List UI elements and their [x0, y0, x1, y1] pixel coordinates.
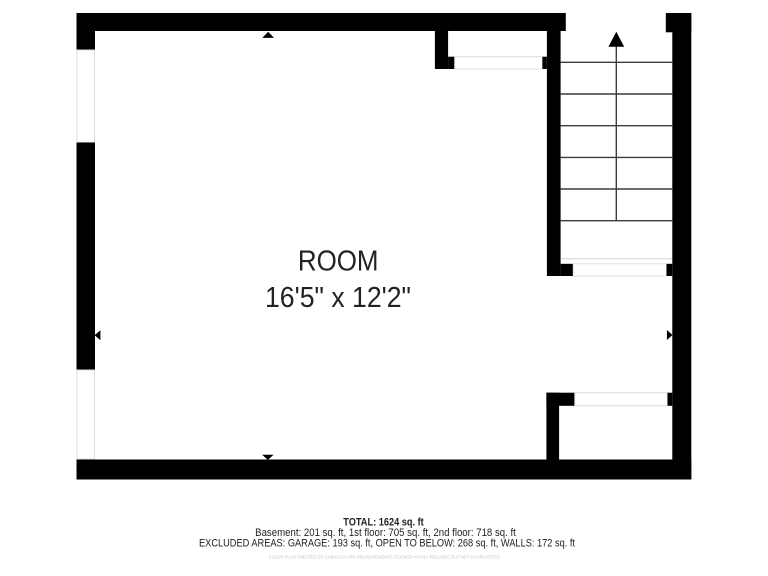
svg-text:16'5" x 12'2": 16'5" x 12'2": [265, 282, 411, 314]
svg-text:ROOM: ROOM: [298, 244, 379, 276]
svg-text:FLOOR PLAN CREATED BY CUBICASA: FLOOR PLAN CREATED BY CUBICASA APP. MEAS…: [269, 554, 500, 560]
svg-text:EXCLUDED AREAS: GARAGE: 193 sq: EXCLUDED AREAS: GARAGE: 193 sq. ft, OPEN…: [199, 538, 575, 550]
